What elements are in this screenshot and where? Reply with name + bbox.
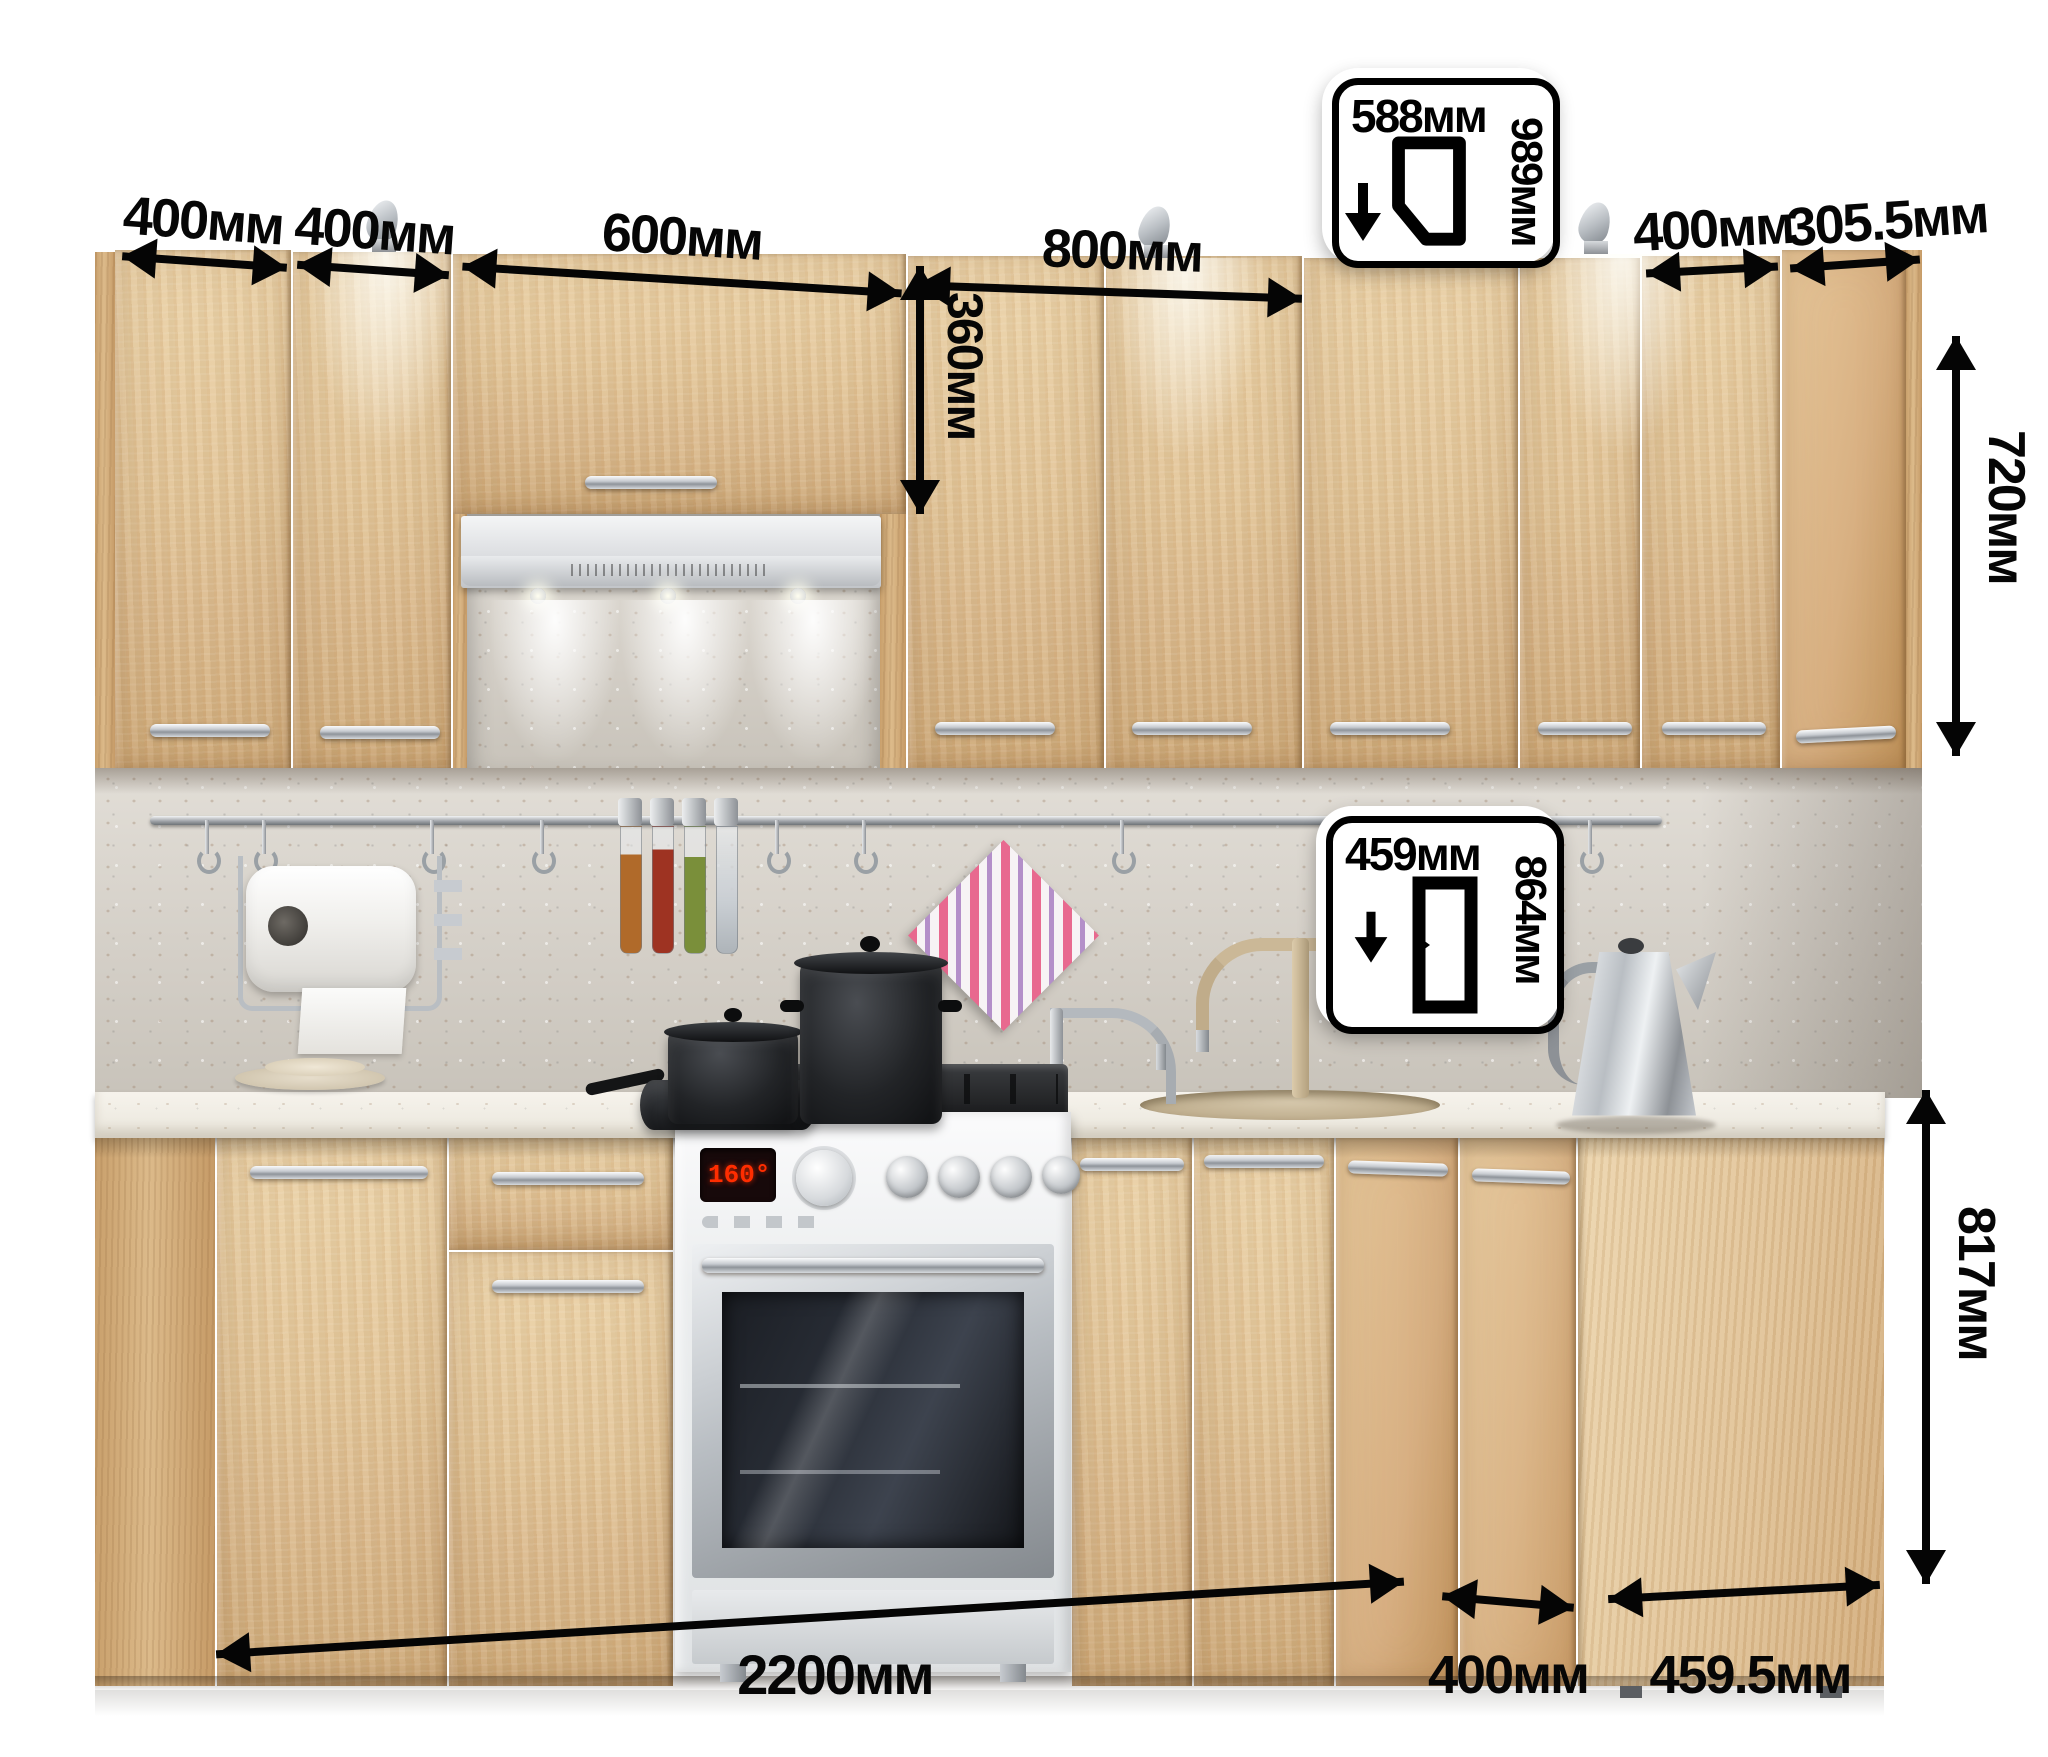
rail-hook-5-ring [767, 848, 791, 874]
dim-arrow-hood-door-360 [916, 266, 924, 514]
upper-left-side-panel [95, 252, 115, 770]
small-pot-lid [664, 1022, 802, 1042]
wall-corner-badge-frame: 588мм 989мм [1332, 78, 1560, 268]
hood-cabinet-door-handle [585, 476, 717, 489]
hood-lamp-2 [660, 588, 676, 604]
small-pot-knob [724, 1008, 742, 1022]
dim-label-upper-400-2: 400мм [290, 194, 459, 267]
large-pot-handle-right [938, 1000, 962, 1012]
hood-vent-slats [571, 564, 771, 576]
upper-door-1-handle [150, 724, 270, 737]
spotlight-3-base [1584, 241, 1608, 254]
corner-cabinet-top-view-icon [1369, 133, 1487, 251]
beige-faucet-spout-tip [1196, 1030, 1209, 1052]
large-pot-handle-left [780, 1000, 804, 1012]
dim-label-upper-305: 305.5мм [1770, 182, 2004, 260]
chrome-faucet-spout [1156, 1044, 1166, 1070]
dim-label-hood-door-360: 360мм [936, 292, 994, 439]
backsplash-corner-shade [1700, 768, 1922, 1098]
base-corner-width-label: 459мм [1345, 827, 1480, 881]
spice-tube-2-glass [652, 826, 674, 954]
spotlight-3 [1580, 202, 1614, 254]
rail-hook-7-ring [1112, 848, 1136, 874]
upper-door-5-handle [1330, 722, 1450, 735]
rail-hook-1-ring [197, 848, 221, 874]
hood-lamp-3 [790, 588, 806, 604]
hood-cabinet-right-side [880, 514, 906, 768]
base-left-side-panel [95, 1138, 215, 1686]
kitchen-dimension-render: 160° 400мм 400мм 600мм 800мм 400мм 305.5… [0, 0, 2048, 1757]
upper-door-7-handle [1662, 722, 1766, 735]
wall-corner-cabinet-badge: 588мм 989мм [1322, 68, 1556, 264]
dim-label-base-corner-400: 400мм [1418, 1644, 1598, 1706]
upper-door-6 [1520, 258, 1640, 770]
dim-arrow-base-height-817 [1922, 1090, 1930, 1584]
spice-tube-2 [650, 798, 674, 958]
upper-cabinet-shadow [95, 768, 1922, 794]
paper-towel-sheet [298, 988, 407, 1054]
upper-door-7 [1642, 256, 1780, 770]
large-pot-lid [794, 952, 948, 974]
upper-door-4 [1106, 256, 1302, 770]
upper-right-end-panel [1906, 250, 1922, 770]
stove-display-value: 160° [708, 1160, 770, 1190]
dim-label-upper-height-720: 720мм [1976, 430, 2036, 584]
base-drawer-handle [492, 1172, 644, 1185]
spice-tube-3-glass [684, 826, 706, 954]
spice-tube-4 [714, 798, 738, 958]
base-door-2-handle [492, 1280, 644, 1293]
paper-towel-clips [434, 880, 462, 970]
stove-display: 160° [700, 1148, 776, 1202]
base-door-2 [449, 1252, 673, 1686]
hood-lamp-1 [530, 588, 546, 604]
spice-tube-2-cap [650, 798, 674, 826]
oven-glass-reflection [722, 1292, 1024, 1548]
rail-hook-6-ring [854, 848, 878, 874]
large-pot [800, 962, 942, 1124]
base-door-1-handle [250, 1166, 428, 1179]
base-corner-door-1 [1336, 1138, 1458, 1686]
cabinet-foot-2 [1000, 1664, 1026, 1682]
large-pot-knob [860, 936, 880, 952]
wall-corner-height-label: 989мм [1501, 117, 1551, 246]
rail-hook-4-ring [532, 848, 556, 874]
base-door-3-handle [1080, 1158, 1184, 1171]
upper-corner-angled-door [1782, 250, 1906, 770]
down-arrow-icon [1341, 181, 1385, 245]
upper-door-3-handle [935, 722, 1055, 735]
kettle-shadow [1556, 1116, 1716, 1134]
upper-door-6-handle [1538, 722, 1632, 735]
upper-door-1 [115, 250, 291, 770]
stove-knob-2 [938, 1156, 980, 1198]
dim-label-base-height-817: 817мм [1946, 1206, 2006, 1360]
dim-label-side-depth-459: 459.5мм [1620, 1644, 1880, 1706]
spice-tube-3 [682, 798, 706, 958]
dim-arrow-upper-height-720 [1952, 336, 1960, 756]
sink [1140, 1090, 1440, 1120]
range-hood-front-vent [461, 556, 881, 586]
oven-handle [702, 1258, 1044, 1273]
plate-top [265, 1058, 365, 1076]
oven-glass [722, 1292, 1024, 1548]
spice-tube-4-glass [716, 826, 738, 954]
dim-label-base-run-2200: 2200мм [690, 1642, 980, 1707]
upper-door-5 [1304, 258, 1518, 770]
cabinet-door-front-icon [1405, 875, 1485, 1015]
spice-tube-3-cap [682, 798, 706, 826]
spice-tube-1-cap [618, 798, 642, 826]
stove-buttons [702, 1216, 822, 1228]
small-pot [668, 1030, 798, 1124]
floor-shadow [95, 1690, 1884, 1716]
upper-door-2 [293, 252, 451, 770]
stove-knob-1 [886, 1156, 928, 1198]
dim-label-upper-400-1: 400мм [116, 184, 290, 258]
base-corner-height-label: 864мм [1505, 855, 1555, 984]
spice-tube-1-glass [620, 826, 642, 954]
base-door-1 [217, 1138, 447, 1686]
stove-dial [796, 1150, 852, 1206]
down-arrow-icon [1351, 909, 1391, 969]
stove-knob-3 [990, 1156, 1032, 1198]
kettle-lid-knob [1618, 938, 1644, 954]
spice-tube-1 [618, 798, 642, 958]
base-corner-cabinet-badge: 459мм 864мм [1316, 806, 1560, 1030]
spice-tube-4-cap [714, 798, 738, 826]
base-corner-badge-frame: 459мм 864мм [1326, 816, 1564, 1034]
dim-label-upper-800: 800мм [1011, 216, 1233, 286]
base-door-4 [1194, 1138, 1334, 1686]
upper-door-2-handle [320, 726, 440, 739]
plinth-shadow [95, 1676, 1884, 1690]
stove-knob-4 [1042, 1156, 1080, 1194]
rail-hook-9-ring [1580, 848, 1604, 874]
paper-towel-core [268, 906, 308, 946]
beige-faucet-base [1292, 938, 1309, 1098]
upper-door-4-handle [1132, 722, 1252, 735]
